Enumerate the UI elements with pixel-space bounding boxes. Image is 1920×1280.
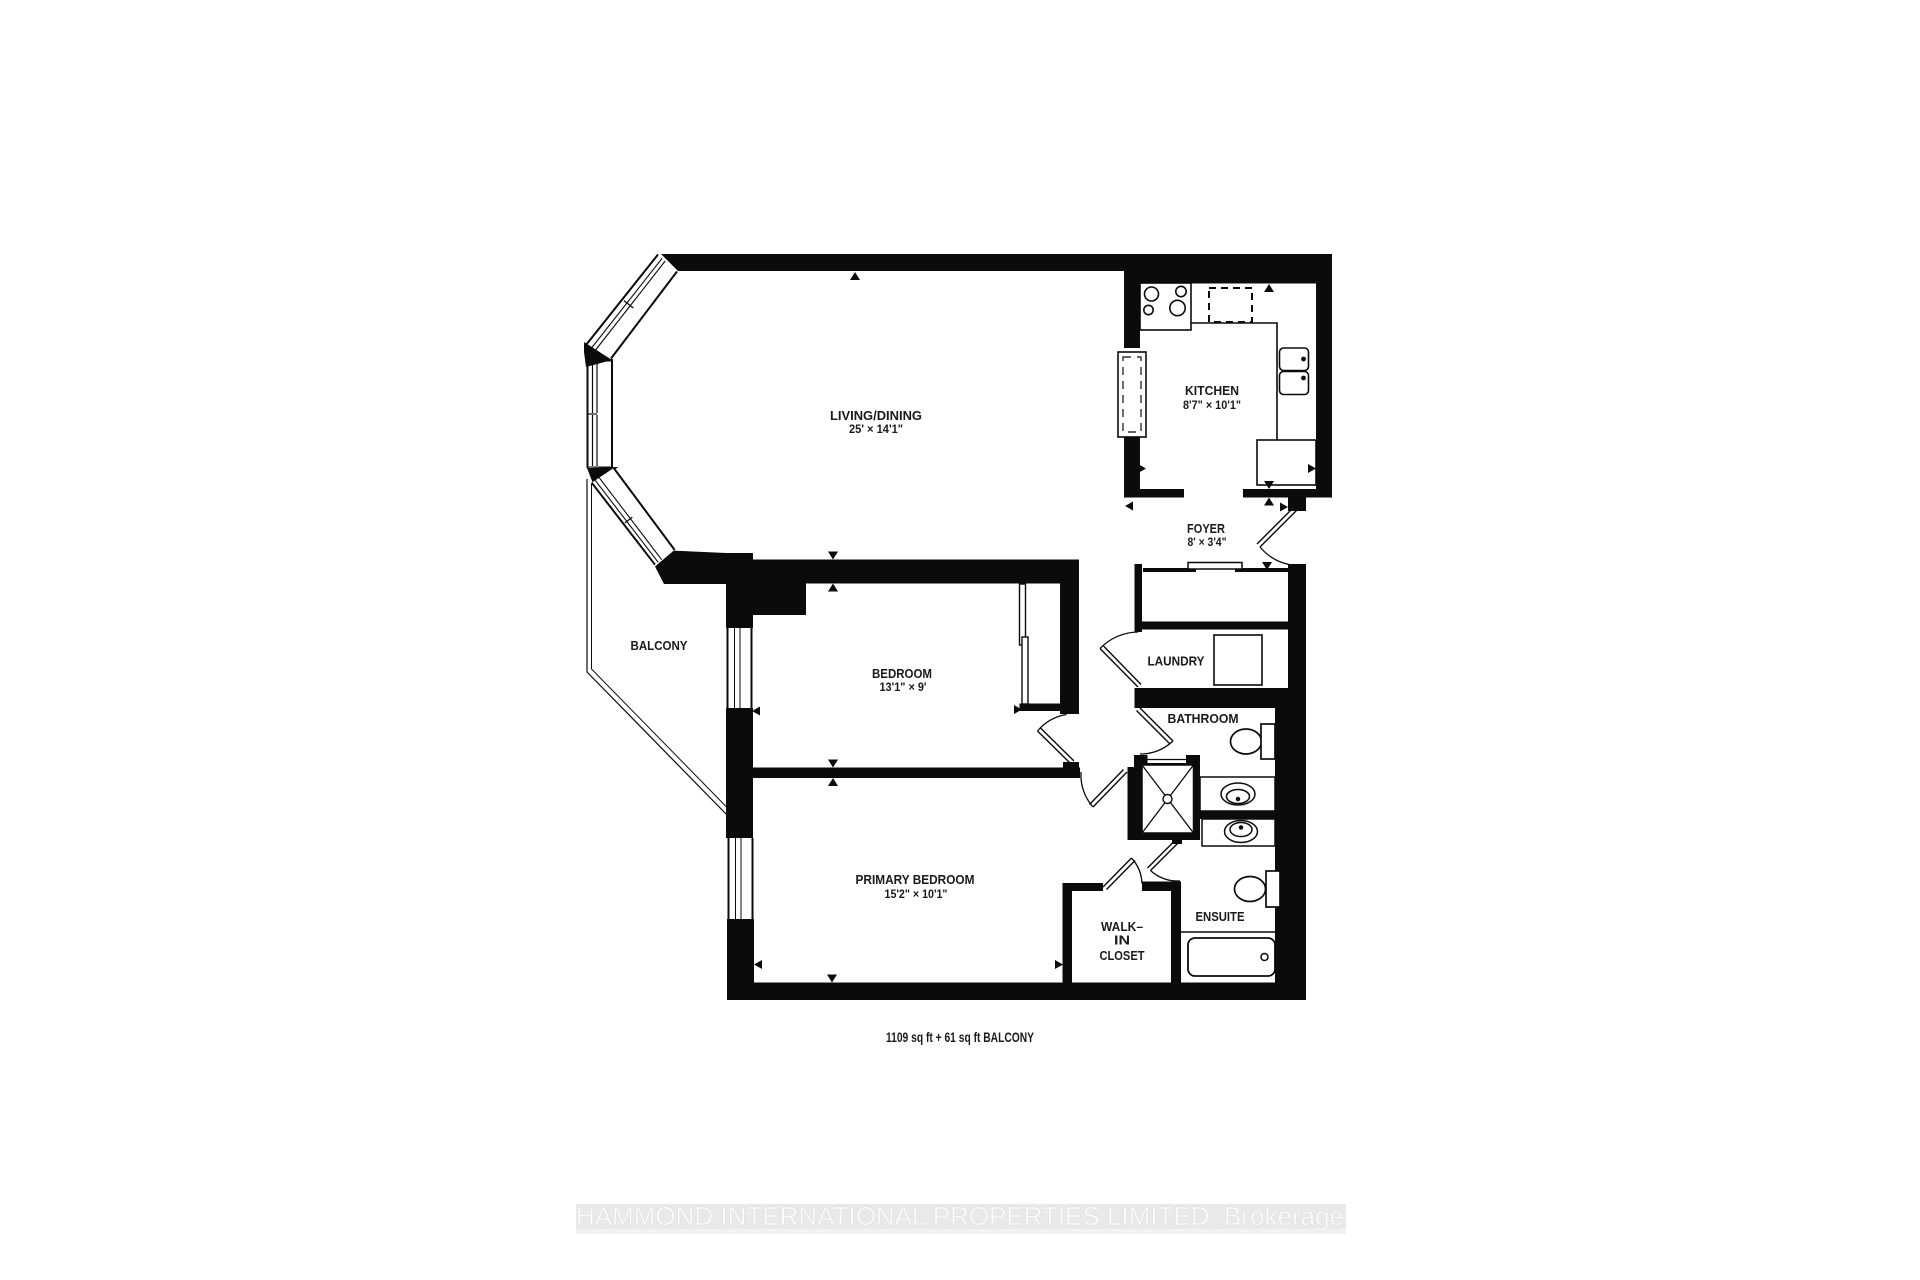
svg-text:KITCHEN: KITCHEN bbox=[1185, 383, 1239, 398]
svg-text:LAUNDRY: LAUNDRY bbox=[1148, 654, 1205, 669]
svg-text:1109 sq ft + 61 sq ft BALCONY: 1109 sq ft + 61 sq ft BALCONY bbox=[886, 1030, 1034, 1045]
svg-text:LIVING/DINING: LIVING/DINING bbox=[830, 408, 922, 423]
svg-text:BALCONY: BALCONY bbox=[631, 638, 688, 653]
svg-text:CLOSET: CLOSET bbox=[1100, 948, 1145, 963]
svg-text:IN: IN bbox=[1114, 933, 1130, 948]
svg-text:PRIMARY BEDROOM: PRIMARY BEDROOM bbox=[856, 872, 975, 887]
svg-text:15'2" × 10'1": 15'2" × 10'1" bbox=[885, 887, 948, 901]
svg-text:BATHROOM: BATHROOM bbox=[1168, 711, 1239, 726]
svg-text:8'7" × 10'1": 8'7" × 10'1" bbox=[1183, 398, 1241, 412]
svg-text:13'1" × 9': 13'1" × 9' bbox=[880, 680, 927, 694]
svg-text:HAMMOND INTERNATIONAL PROPERTI: HAMMOND INTERNATIONAL PROPERTIES LIMITED… bbox=[576, 1201, 1344, 1231]
svg-text:FOYER: FOYER bbox=[1187, 521, 1226, 536]
svg-text:8' × 3'4": 8' × 3'4" bbox=[1188, 535, 1227, 549]
svg-text:BEDROOM: BEDROOM bbox=[872, 666, 932, 681]
svg-text:ENSUITE: ENSUITE bbox=[1196, 909, 1245, 924]
svg-text:25' × 14'1": 25' × 14'1" bbox=[849, 422, 903, 436]
